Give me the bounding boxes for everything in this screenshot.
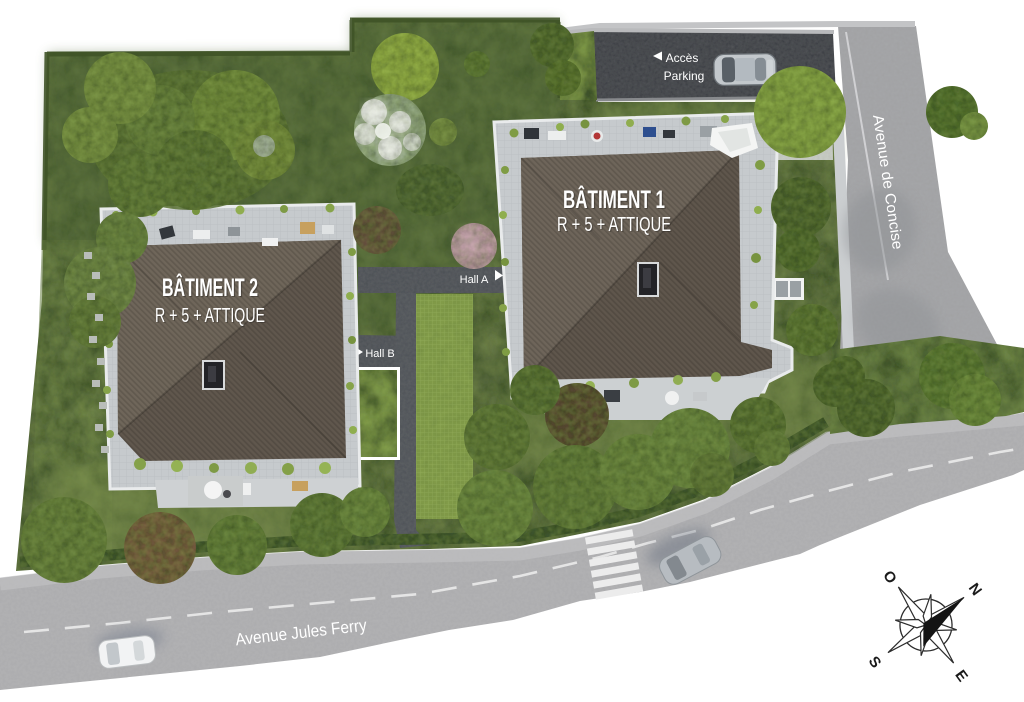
- svg-text:Parking: Parking: [664, 69, 705, 83]
- svg-text:R + 5 + ATTIQUE: R + 5 + ATTIQUE: [155, 305, 265, 327]
- svg-text:Hall B: Hall B: [365, 348, 394, 360]
- svg-text:BÂTIMENT 1: BÂTIMENT 1: [563, 184, 665, 214]
- svg-text:Accès: Accès: [666, 51, 699, 65]
- svg-text:R + 5 + ATTIQUE: R + 5 + ATTIQUE: [557, 214, 671, 236]
- svg-text:Hall A: Hall A: [460, 274, 489, 286]
- svg-text:BÂTIMENT 2: BÂTIMENT 2: [162, 272, 258, 302]
